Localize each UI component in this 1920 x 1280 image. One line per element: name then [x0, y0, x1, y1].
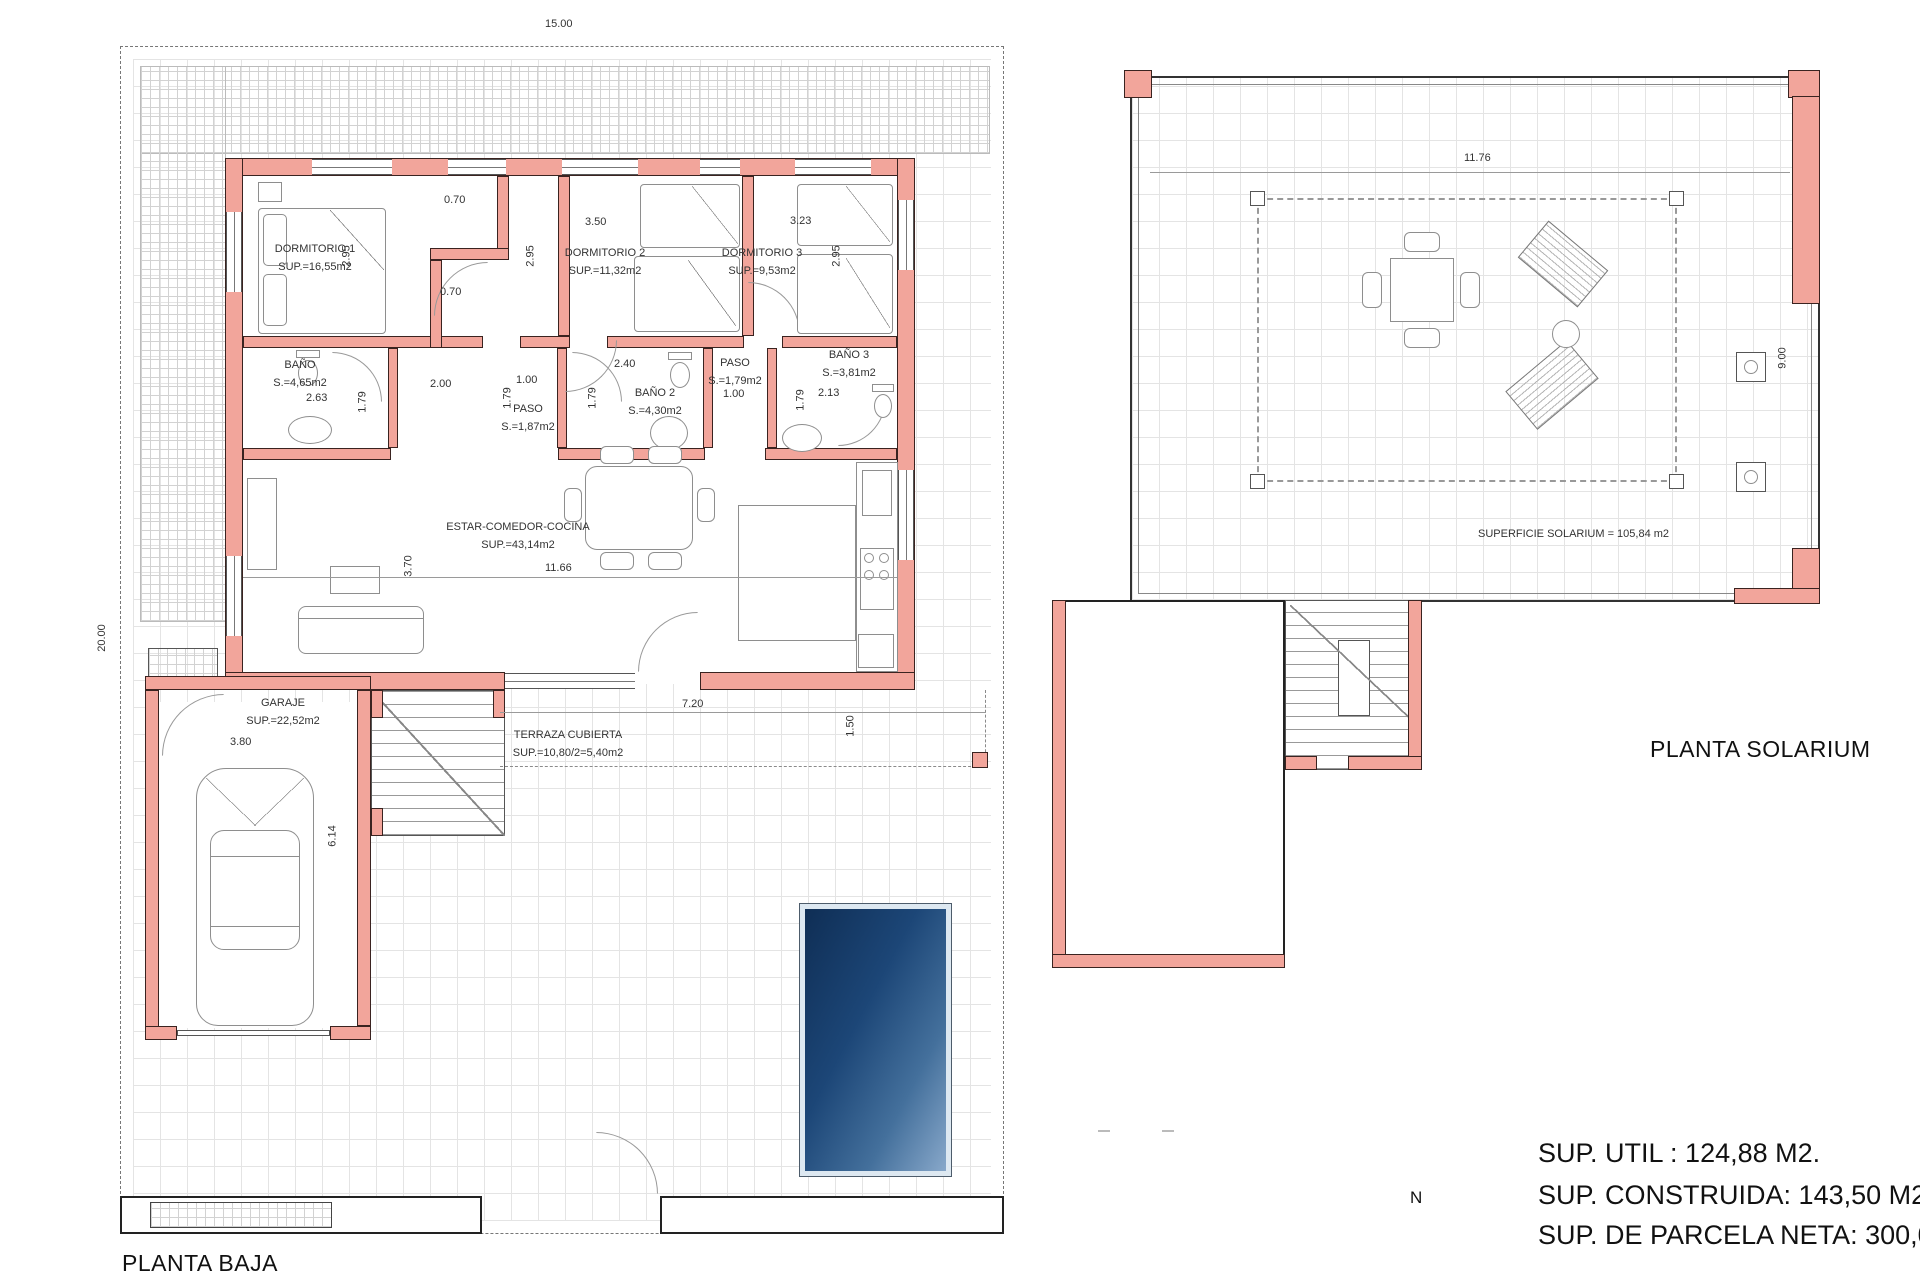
solarium-chair-w — [1362, 272, 1382, 308]
solarium-table — [1390, 258, 1454, 322]
label-dorm1: DORMITORIO 1 SUP.=16,55m2 — [240, 240, 390, 276]
sink1 — [288, 416, 332, 444]
label-terraza-area: SUP.=10,80/2=5,40m2 — [488, 744, 648, 762]
wall-bath-living-3 — [765, 448, 897, 460]
summary-sup-construida: SUP. CONSTRUIDA: 143,50 M2. — [1538, 1180, 1920, 1211]
wall-bed-bath-2 — [520, 336, 570, 348]
label-garaje-area: SUP.=22,52m2 — [210, 712, 356, 730]
dim-terraza-w: 7.20 — [682, 698, 703, 710]
label-dorm2-name: DORMITORIO 2 — [530, 244, 680, 262]
solarium-wall-right — [1792, 96, 1820, 304]
wc3-bowl — [874, 394, 892, 418]
dim-terraza-h: 1.50 — [845, 715, 857, 736]
chair-2 — [648, 446, 682, 464]
dim-estar-h: 3.70 — [403, 555, 415, 576]
coffee-table — [330, 566, 380, 594]
wall-garage-right — [357, 690, 371, 1026]
label-bano1: BAÑO S.=4,65m2 — [245, 356, 355, 392]
dim-estar-w: 11.66 — [545, 562, 572, 574]
label-bano3-name: BAÑO 3 — [794, 346, 904, 364]
wall-garage-top — [145, 676, 371, 690]
label-estar: ESTAR-COMEDOR-COCINA SUP.=43,14m2 — [428, 518, 608, 554]
label-estar-area: SUP.=43,14m2 — [428, 536, 608, 554]
burner-3 — [864, 570, 874, 580]
bed-dorm3-b-fold — [846, 258, 890, 328]
fence-right — [660, 1196, 1004, 1234]
car-rear-window — [210, 926, 300, 927]
dim-bano3-h: 1.79 — [795, 389, 807, 410]
wall-garage-bottom-l — [145, 1026, 177, 1040]
label-dorm3: DORMITORIO 3 SUP.=9,53m2 — [688, 244, 836, 280]
label-bano3-area: S.=3,81m2 — [794, 364, 904, 382]
solarium-chair-s — [1404, 328, 1440, 348]
label-dorm3-name: DORMITORIO 3 — [688, 244, 836, 262]
floor-plan-sheet: 15.00 20.00 — [0, 0, 1920, 1280]
roof-block-wall-bottom — [1052, 954, 1285, 968]
car-windshield — [210, 856, 300, 857]
window-closet — [448, 159, 506, 175]
nightstand-dorm1 — [258, 182, 282, 202]
sink2 — [650, 416, 688, 450]
label-paso2-name: PASO — [685, 354, 785, 372]
car-cabin — [210, 830, 300, 950]
bed-dorm3-a-fold — [846, 186, 890, 242]
dim-dorm2-w: 3.50 — [585, 216, 606, 228]
label-bano1-name: BAÑO — [245, 356, 355, 374]
tick-mark-2 — [1162, 1130, 1174, 1132]
window-dorm3 — [795, 159, 871, 175]
wc3-tank — [872, 384, 894, 392]
wall-bath-living-1 — [243, 448, 391, 460]
stairs-ground-diagonal — [371, 690, 505, 836]
window-kitchen-right — [898, 470, 914, 560]
car-hood-line-2 — [254, 778, 304, 826]
window-dorm1 — [312, 159, 392, 175]
garage-door — [177, 1030, 330, 1036]
wall-bottom-right — [700, 672, 915, 690]
stairs-stub-2 — [371, 808, 383, 836]
dim-garaje-w: 3.80 — [230, 736, 251, 748]
roof-block-wall-left — [1052, 600, 1066, 968]
window-living-left — [226, 556, 242, 636]
sink3 — [782, 424, 822, 452]
solarium-fixture-2-drain — [1744, 470, 1758, 484]
tick-mark-1 — [1098, 1130, 1110, 1132]
solarium-chair-n — [1404, 232, 1440, 252]
roof-block — [1052, 600, 1285, 968]
label-bano2-area: S.=4,30m2 — [600, 402, 710, 420]
dim-bano3-w: 2.13 — [818, 387, 839, 399]
stairs-upper-wall-bottom-1 — [1285, 756, 1317, 770]
solarium-chair-e — [1460, 272, 1480, 308]
terraza-dash-bottom — [500, 766, 986, 767]
dim-bano2-w: 2.40 — [614, 358, 635, 370]
kitchen-sink — [862, 470, 892, 516]
stairs-upper-wall-right — [1408, 600, 1422, 770]
label-terraza: TERRAZA CUBIERTA SUP.=10,80/2=5,40m2 — [488, 726, 648, 762]
fridge — [858, 634, 894, 668]
dim-closet-bottom: 0.70 — [440, 286, 461, 298]
dim-paso1-w2: 1.00 — [516, 374, 537, 386]
dim-solarium-w: 11.76 — [1464, 152, 1491, 164]
window-dorm3-right — [898, 200, 914, 270]
fence-planter — [150, 1202, 332, 1228]
kitchen-island — [738, 505, 856, 641]
chair-1 — [600, 446, 634, 464]
burner-4 — [879, 570, 889, 580]
pergola-outline — [1257, 198, 1677, 482]
label-dorm3-area: SUP.=9,53m2 — [688, 262, 836, 280]
dim-solarium-h: 9.00 — [1777, 347, 1789, 368]
label-bano3: BAÑO 3 S.=3,81m2 — [794, 346, 904, 382]
solarium-corner-tl — [1124, 70, 1152, 98]
window-dorm2 — [562, 159, 638, 175]
dim-bano1-w: 2.63 — [306, 392, 327, 404]
sofa-back-line — [298, 618, 424, 619]
dimline-terraza — [500, 712, 986, 713]
bed-dorm1-pillow-2 — [263, 274, 287, 326]
stairs-stub-1 — [371, 690, 383, 718]
chair-6 — [697, 488, 715, 522]
title-planta-baja: PLANTA BAJA — [122, 1250, 278, 1277]
label-paso1-area: S.=1,87m2 — [478, 418, 578, 436]
solarium-corner-tr — [1788, 70, 1820, 98]
sofa — [298, 606, 424, 654]
pergola-post-br — [1669, 474, 1684, 489]
label-garaje: GARAJE SUP.=22,52m2 — [210, 694, 356, 730]
pergola-post-tr — [1669, 191, 1684, 206]
label-dorm1-name: DORMITORIO 1 — [240, 240, 390, 258]
label-dorm1-area: SUP.=16,55m2 — [240, 258, 390, 276]
wall-bed-bath-3 — [607, 336, 744, 348]
pool-water — [805, 909, 946, 1171]
label-dorm2-area: SUP.=11,32m2 — [530, 262, 680, 280]
title-planta-solarium: PLANTA SOLARIUM — [1650, 736, 1871, 763]
label-garaje-name: GARAJE — [210, 694, 356, 712]
label-paso2: PASO S.=1,79m2 — [685, 354, 785, 390]
dim-bano1-h: 1.79 — [357, 391, 369, 412]
dim-plot-height: 20.00 — [96, 624, 108, 652]
label-estar-name: ESTAR-COMEDOR-COCINA — [428, 518, 608, 536]
label-bano1-area: S.=4,65m2 — [245, 374, 355, 392]
label-paso1-name: PASO — [478, 400, 578, 418]
label-dorm2: DORMITORIO 2 SUP.=11,32m2 — [530, 244, 680, 280]
pergola-post-bl — [1250, 474, 1265, 489]
terraza-post — [972, 752, 988, 768]
dim-plot-width: 15.00 — [545, 18, 573, 30]
dim-dorm3-w: 3.23 — [790, 215, 811, 227]
dim-closet-top: 0.70 — [444, 194, 465, 206]
stairs-upper-diagonal — [1290, 605, 1417, 725]
chair-5 — [564, 488, 582, 522]
dim-paso1-w: 2.00 — [430, 378, 451, 390]
window-terrace-slider — [505, 673, 635, 689]
solarium-fixture-1-drain — [1744, 360, 1758, 374]
wall-garage-left — [145, 690, 159, 1040]
label-solarium-surface: SUPERFICIE SOLARIUM = 105,84 m2 — [1478, 528, 1669, 540]
window-hall — [700, 159, 740, 175]
stairs-stub-3 — [493, 690, 505, 718]
burner-1 — [864, 553, 874, 563]
solarium-corner-br-h — [1734, 588, 1820, 604]
tv-unit — [247, 478, 277, 570]
wall-bed-bath-1 — [243, 336, 483, 348]
label-paso1: PASO S.=1,87m2 — [478, 400, 578, 436]
bed-dorm2-a-fold — [692, 186, 738, 244]
burner-2 — [879, 553, 889, 563]
dim-bano2-h: 1.79 — [587, 387, 599, 408]
car-hood-line-1 — [206, 778, 256, 826]
stairs-upper-wall-bottom-2 — [1348, 756, 1422, 770]
dim-garaje-h: 6.14 — [327, 825, 339, 846]
wall-bano1-right — [388, 348, 398, 448]
dimline-estar — [243, 577, 897, 578]
compass-north: N — [1410, 1188, 1422, 1208]
dimline-solarium-w — [1150, 172, 1790, 173]
setback-hatch-left — [140, 66, 226, 622]
summary-sup-util: SUP. UTIL : 124,88 M2. — [1538, 1138, 1820, 1169]
label-paso2-area: S.=1,79m2 — [685, 372, 785, 390]
chair-4 — [648, 552, 682, 570]
side-table-round — [1552, 320, 1580, 348]
setback-hatch-top — [140, 66, 990, 154]
wall-dorm1-right — [497, 176, 509, 254]
wall-garage-bottom-r — [330, 1026, 371, 1040]
pergola-post-tl — [1250, 191, 1265, 206]
chair-3 — [600, 552, 634, 570]
label-terraza-name: TERRAZA CUBIERTA — [488, 726, 648, 744]
pool — [799, 903, 952, 1177]
summary-sup-parcela: SUP. DE PARCELA NETA: 300,00 M2. — [1538, 1220, 1920, 1251]
wall-closet-jog-h — [430, 248, 509, 260]
